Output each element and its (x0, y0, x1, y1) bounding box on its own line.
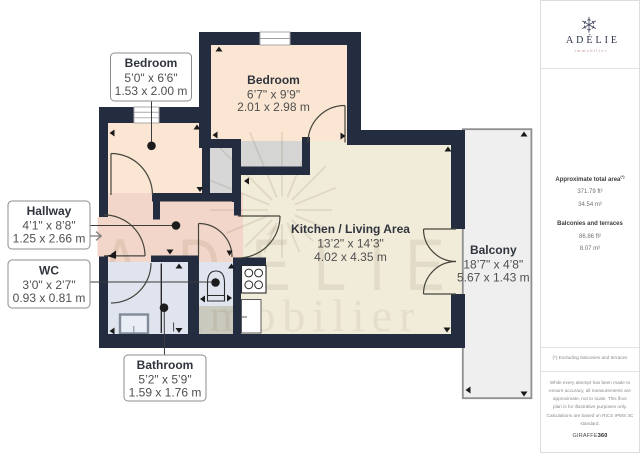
svg-text:3’0" x 2’7": 3’0" x 2’7" (22, 278, 75, 292)
svg-text:Bedroom: Bedroom (247, 73, 300, 87)
svg-text:1.59 x 1.76 m: 1.59 x 1.76 m (129, 386, 202, 400)
svg-text:5’0" x 6’6": 5’0" x 6’6" (124, 71, 177, 85)
svg-text:4.02 x 4.35 m: 4.02 x 4.35 m (314, 250, 387, 264)
svg-text:2.01 x 2.98 m: 2.01 x 2.98 m (237, 100, 310, 114)
svg-text:Kitchen / Living Area: Kitchen / Living Area (291, 222, 410, 236)
svg-text:4’1" x 8’8": 4’1" x 8’8" (22, 219, 75, 233)
svg-text:Hallway: Hallway (27, 204, 72, 218)
svg-text:1.53 x 2.00 m: 1.53 x 2.00 m (115, 84, 188, 98)
svg-text:18’7" x 4’8": 18’7" x 4’8" (463, 258, 523, 272)
svg-text:5’2" x 5’9": 5’2" x 5’9" (138, 373, 191, 387)
svg-text:Bathroom: Bathroom (137, 358, 194, 372)
svg-text:0.93 x 0.81 m: 0.93 x 0.81 m (13, 291, 86, 305)
svg-text:Balcony: Balcony (470, 243, 517, 257)
svg-text:13’2" x 14’3": 13’2" x 14’3" (317, 237, 384, 251)
svg-text:WC: WC (39, 264, 59, 278)
svg-text:Bedroom: Bedroom (125, 56, 178, 70)
svg-text:1.25 x 2.66 m: 1.25 x 2.66 m (13, 232, 86, 246)
svg-text:5.67 x 1.43 m: 5.67 x 1.43 m (457, 271, 530, 285)
